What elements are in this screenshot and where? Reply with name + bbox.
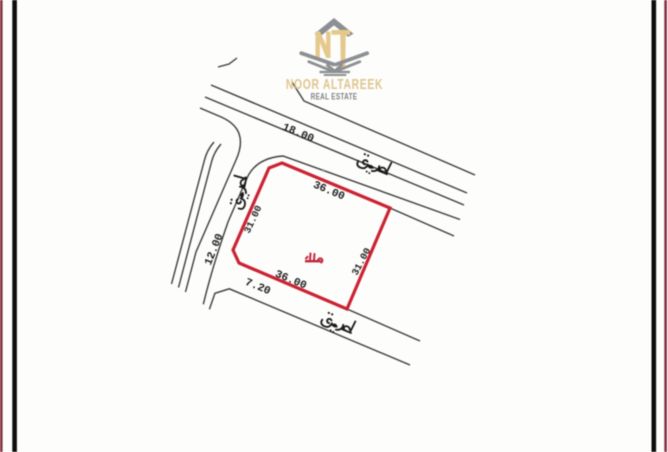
svg-text:REAL ESTATE: REAL ESTATE (311, 91, 358, 101)
svg-text:NOOR ALTAREEK: NOOR ALTAREEK (286, 75, 383, 92)
